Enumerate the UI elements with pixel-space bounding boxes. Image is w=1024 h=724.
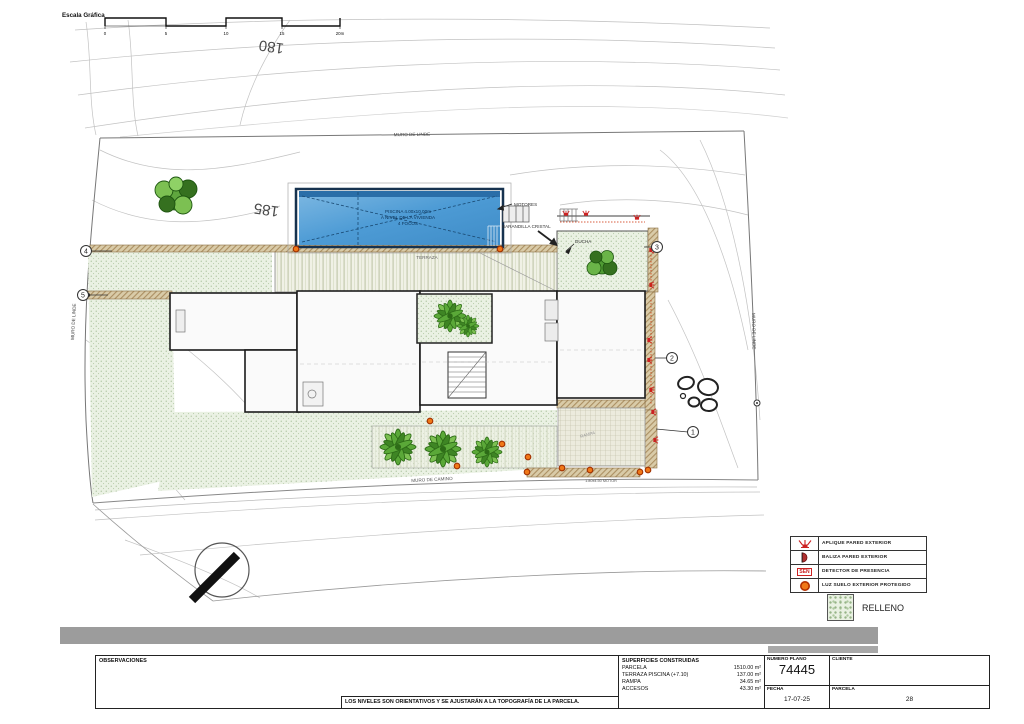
fecha-value: 17-07-25 — [765, 696, 829, 703]
legend-row: LUZ SUELO EXTERIOR PROTEGIDO — [791, 579, 926, 592]
scale-tick-20: 20m — [336, 31, 345, 36]
pool-label-2: A NIVEL DE LA VIVIENDA — [381, 215, 436, 220]
superficies-cell: SUPERFICIES CONSTRUIDAS PARCELA 1510.00 … — [619, 656, 765, 708]
marker-1: 1 — [691, 430, 695, 437]
pool-equipment — [503, 206, 650, 222]
separator-bar — [60, 627, 878, 644]
barandilla-cristal-label: BARANDILLA CRISTAL — [502, 224, 551, 229]
scale-tick-10: 10 — [224, 31, 229, 36]
ground-light-icon — [791, 579, 819, 592]
parcela-label: PARCELA — [830, 686, 989, 693]
contour-label-180: 180 — [258, 36, 285, 56]
legend-row: SEN DETECTOR DE PRESENCIA — [791, 565, 926, 579]
numero-plano-value: 74445 — [765, 663, 829, 677]
cliente-label: CLIENTE — [830, 656, 989, 663]
scale-tick-15: 15 — [280, 31, 285, 36]
relleno-label: RELLENO — [862, 603, 904, 613]
bathroom — [303, 382, 323, 406]
muro-camino-label: MURO DE CAMINO — [411, 476, 453, 483]
cliente-box: CLIENTE — [830, 656, 989, 686]
wall-sconce-icon — [791, 537, 819, 550]
superficie-value: 137.00 m² — [737, 672, 761, 679]
lighting-legend: APLIQUE PARED EXTERIOR BALIZA PARED EXTE… — [790, 536, 927, 593]
pool: PISCINA 4.00x10.00m A NIVEL DE LA VIVIEN… — [288, 183, 511, 253]
relleno-swatch — [827, 594, 854, 621]
graphic-scale: Escala Gráfica 0 5 10 15 20m — [62, 12, 345, 36]
superficie-value: 43.30 m² — [740, 686, 761, 693]
muro-linde-left-label: MURO DE LINDE — [70, 303, 77, 340]
scale-title: Escala Gráfica — [62, 12, 105, 19]
numero-plano-box: NUMERO PLANO 74445 — [765, 656, 829, 686]
legend-label: LUZ SUELO EXTERIOR PROTEGIDO — [819, 579, 911, 592]
scale-tick-0: 0 — [104, 31, 107, 36]
superficie-value: 34.65 m² — [740, 679, 761, 686]
tree-top-left — [155, 177, 197, 214]
superficie-name: PARCELA — [622, 665, 647, 672]
superficie-value: 1510.00 m² — [734, 665, 761, 672]
marker-5: 5 — [81, 293, 85, 300]
sen-text: SEN — [797, 568, 811, 576]
observaciones-label: OBSERVACIONES — [96, 656, 618, 666]
superficie-name: ACCESOS — [622, 686, 648, 693]
observaciones-cell: OBSERVACIONES LOS NIVELES SON ORIENTATIV… — [96, 656, 619, 708]
superficie-name: RAMPA — [622, 679, 641, 686]
superficies-row: RAMPA 34.65 m² — [622, 679, 761, 686]
motor-gate-label: 1.80x4.50 MOTOR — [585, 479, 617, 483]
superficies-header: SUPERFICIES CONSTRUIDAS — [622, 658, 761, 664]
legend-label: DETECTOR DE PRESENCIA — [819, 565, 890, 578]
levels-note: LOS NIVELES SON ORIENTATIVOS Y SE AJUSTA… — [341, 696, 618, 708]
pool-label-3: 4 FOCOS — [398, 221, 418, 226]
terraza-label: TERRAZA — [416, 255, 438, 260]
muro-linde-right-label: MURO DE LINDE — [751, 313, 757, 350]
house-footprint — [170, 291, 645, 412]
presence-detector-icon: SEN — [791, 565, 819, 578]
rocks — [677, 375, 720, 412]
legend-row: APLIQUE PARED EXTERIOR — [791, 537, 926, 551]
superficie-name: TERRAZA PISCINA (+7.10) — [622, 672, 688, 679]
superficies-row: PARCELA 1510.00 m² — [622, 665, 761, 672]
north-arrow — [192, 543, 249, 600]
legend-row: BALIZA PARED EXTERIOR — [791, 551, 926, 565]
motores-label: MOTORES — [514, 202, 537, 207]
parcela-value: 28 — [830, 696, 989, 703]
scale-tick-5: 5 — [165, 31, 168, 36]
ducha-label: DUCHA — [575, 239, 592, 244]
contour-label-185: 185 — [253, 199, 280, 219]
kitchen-island — [545, 300, 558, 320]
marker-3: 3 — [655, 245, 659, 252]
superficies-row: ACCESOS 43.30 m² — [622, 686, 761, 693]
separator-bar-small — [768, 646, 878, 653]
marker-2: 2 — [670, 356, 674, 363]
site-plan-sheet: 180 185 190 RAMPA — [0, 0, 1024, 724]
parcela-box: PARCELA 28 — [830, 686, 989, 703]
baliza-icon — [791, 551, 819, 564]
client-cell: CLIENTE PARCELA 28 — [830, 656, 989, 708]
plan-number-cell: NUMERO PLANO 74445 FECHA 17-07-25 — [765, 656, 830, 708]
marker-4: 4 — [84, 249, 88, 256]
legend-label: BALIZA PARED EXTERIOR — [819, 551, 887, 564]
pool-label-1: PISCINA 4.00x10.00m — [385, 209, 431, 214]
fecha-box: FECHA 17-07-25 — [765, 686, 829, 703]
ramp-area: RAMPA — [558, 408, 645, 466]
legend-label: APLIQUE PARED EXTERIOR — [819, 537, 891, 550]
fecha-label: FECHA — [765, 686, 829, 693]
shower-bush — [587, 251, 617, 276]
superficies-row: TERRAZA PISCINA (+7.10) 137.00 m² — [622, 672, 761, 679]
relleno-key: RELLENO — [827, 594, 904, 621]
muro-linde-top-label: MURO DE LINDE — [394, 132, 431, 137]
title-block: OBSERVACIONES LOS NIVELES SON ORIENTATIV… — [95, 655, 990, 709]
